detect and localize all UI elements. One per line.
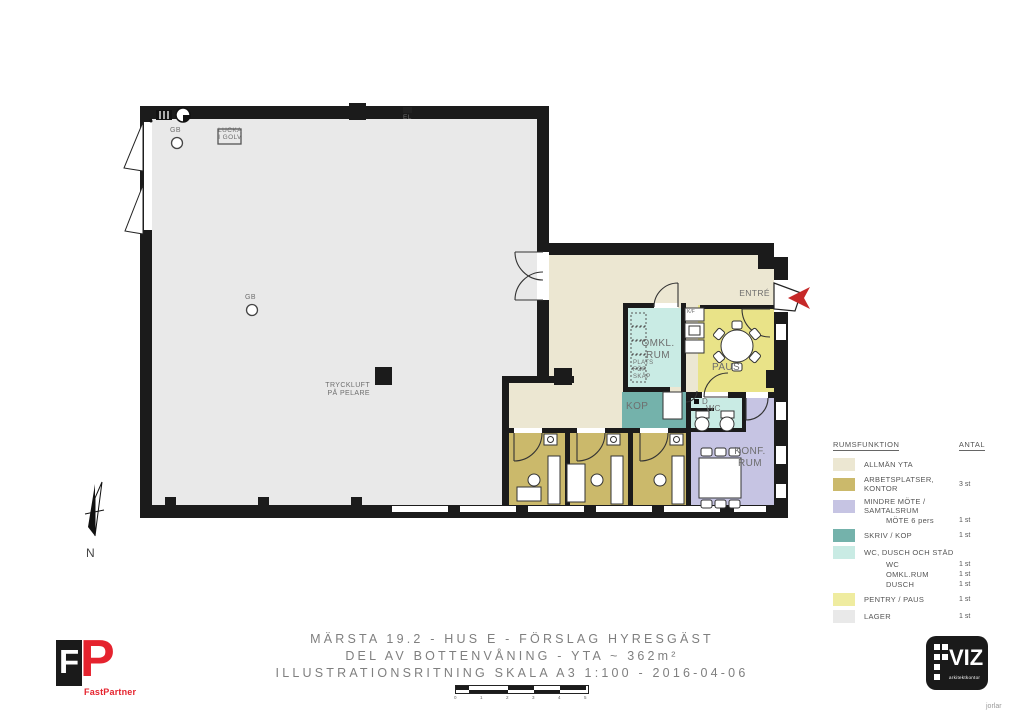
window-opening — [776, 324, 786, 340]
viz-logo-square — [942, 644, 948, 650]
label-north: N — [86, 546, 95, 560]
scale-tick: 4 — [558, 695, 561, 700]
legend-row: PENTRY / PAUS 1 st — [833, 593, 985, 606]
door-opening-entre — [774, 280, 788, 312]
door-opening-office-3 — [640, 428, 668, 433]
door-opening-konf — [746, 392, 768, 398]
wall-top — [140, 106, 549, 119]
pillar — [349, 103, 366, 120]
title-line-1: MÄRSTA 19.2 - HUS E - FÖRSLAG HYRESGÄST — [252, 631, 772, 648]
pillar — [766, 370, 780, 388]
scale-tick: 0 — [454, 695, 457, 700]
window-opening — [460, 506, 516, 512]
window-opening — [528, 506, 584, 512]
door-opening-double — [537, 252, 549, 300]
legend-header-count: ANTAL — [959, 440, 985, 451]
fastpartner-name: FastPartner — [84, 687, 136, 697]
viz-logo-square — [942, 654, 948, 660]
legend-swatch — [833, 478, 855, 491]
wall-omkl-left — [623, 303, 628, 392]
legend-swatch — [833, 593, 855, 606]
wall-left — [140, 230, 152, 507]
fastpartner-letter-p: P — [80, 633, 115, 685]
floor-plan-sheet: ENTRÉ OMKL.RUM PLATSFÖRSKÅP K/F PAUS KOP… — [0, 0, 1024, 724]
viz-logo-square — [934, 674, 940, 680]
legend-swatch — [833, 458, 855, 471]
legend-row: WC, DUSCH OCH STÄD — [833, 546, 985, 559]
window-opening — [734, 506, 766, 512]
label-tryckluft: TRYCKLUFTPÅ PELARE — [300, 366, 370, 414]
legend-row: ALLMÄN YTA — [833, 458, 985, 471]
fastpartner-letter-f: F — [59, 645, 79, 678]
scale-tick: 5 — [584, 695, 587, 700]
wall-stub — [165, 497, 176, 505]
viz-logo-square — [934, 654, 940, 660]
corridor-allman-yta — [507, 383, 622, 432]
viz-logo-square — [934, 664, 940, 670]
label-el: EL — [403, 114, 412, 121]
fastpartner-logo: F P FastPartner — [56, 640, 186, 700]
label-kop: KOP — [626, 401, 648, 413]
legend-row: SKRIV / KOP 1 st — [833, 529, 985, 542]
wall-stub — [258, 497, 269, 505]
legend-swatch — [833, 529, 855, 542]
window-opening — [776, 402, 786, 420]
legend-row: ARBETSPLATSER, KONTOR 3 st — [833, 475, 985, 493]
window-opening — [776, 446, 786, 464]
wall-left-stub — [140, 106, 152, 122]
legend-swatch — [833, 500, 855, 513]
title-line-3: ILLUSTRATIONSRITNING SKALA A3 1:100 - 20… — [252, 665, 772, 682]
legend-swatch — [833, 610, 855, 623]
label-kf: K/F — [687, 310, 695, 316]
pillar — [554, 368, 572, 385]
label-lucka-i-golv: LUCKAI GOLV — [211, 112, 249, 157]
wall-entrance-top — [537, 243, 774, 255]
scale-tick: 2 — [506, 695, 509, 700]
window-opening — [596, 506, 652, 512]
scale-tick: 1 — [480, 695, 483, 700]
title-block: MÄRSTA 19.2 - HUS E - FÖRSLAG HYRESGÄST … — [252, 631, 772, 682]
scale-bar: 0 1 2 3 4 5 — [455, 685, 589, 694]
legend-row: LAGER 1 st — [833, 610, 985, 623]
north-arrow-icon — [85, 482, 104, 536]
title-line-2: DEL AV BOTTENVÅNING - YTA ~ 362m² — [252, 648, 772, 665]
label-plats-for-skap: PLATSFÖRSKÅP — [633, 346, 654, 394]
label-gb-2: GB — [245, 294, 256, 302]
wall-paus-top — [700, 305, 774, 309]
legend-header: RUMSFUNKTION ANTAL — [833, 440, 985, 451]
label-wc: WC — [706, 404, 721, 414]
viz-logo-square — [934, 644, 940, 650]
viz-name: VIZ — [949, 647, 983, 669]
legend-swatch — [833, 546, 855, 559]
label-gb-1: GB — [170, 127, 181, 135]
legend: RUMSFUNKTION ANTAL ALLMÄN YTA ARBETSPLAT… — [833, 440, 985, 627]
label-konf-rum: KONF.RUM — [728, 423, 772, 492]
window-opening — [664, 506, 720, 512]
door-opening-omkl — [654, 303, 678, 308]
legend-row: DUSCH 1 st — [833, 580, 985, 589]
door-opening-office-2 — [577, 428, 605, 433]
scale-tick: 3 — [532, 695, 535, 700]
wall-stub — [351, 497, 362, 505]
door-opening-office-1 — [514, 428, 542, 433]
window-opening — [776, 484, 786, 498]
legend-row: MÖTE 6 pers 1 st — [833, 516, 985, 525]
wall-corridor-left — [502, 376, 509, 507]
wall-omkl-right — [681, 303, 686, 392]
viz-logo: VIZ arkitektkontor — [926, 636, 988, 690]
viz-subtitle: arkitektkontor — [949, 675, 980, 680]
legend-row: OMKL.RUM 1 st — [833, 570, 985, 579]
wall-office-divider-1 — [565, 430, 570, 507]
room-paus — [698, 305, 774, 398]
entre-arrow-icon — [788, 287, 810, 309]
legend-row: WC 1 st — [833, 560, 985, 569]
legend-row: MINDRE MÖTE / SAMTALSRUM — [833, 497, 985, 515]
wall-corner-step — [758, 243, 774, 269]
pillar-tryckluft — [375, 367, 392, 385]
label-paus: PAUS — [712, 362, 740, 374]
label-entre: ENTRÉ — [720, 289, 770, 299]
credit-text: jorlar — [986, 703, 1002, 710]
wall-office-divider-2 — [628, 430, 633, 507]
legend-header-label: RUMSFUNKTION — [833, 440, 899, 451]
room-lager-upper — [152, 118, 537, 380]
rooms-kontor — [505, 430, 687, 507]
window-opening — [392, 506, 448, 512]
